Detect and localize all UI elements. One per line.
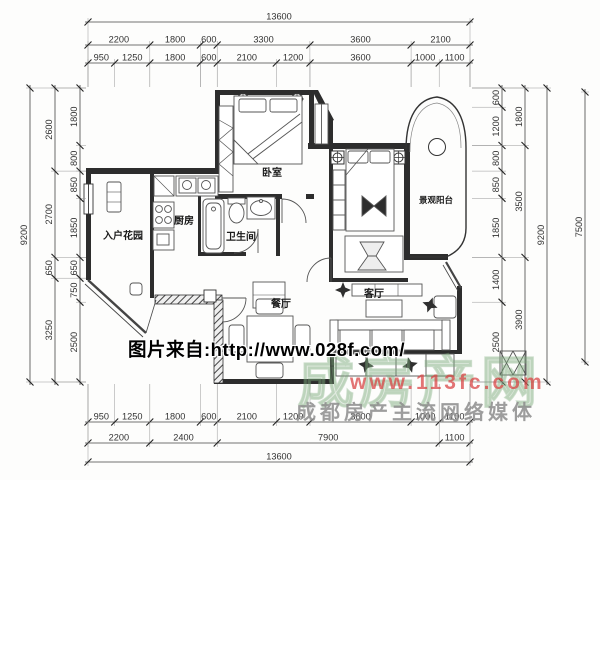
- dimension-value: 1000: [415, 53, 435, 63]
- dimension-value: 1250: [122, 412, 142, 422]
- garden-bench: [107, 182, 121, 212]
- dimension-value: 1800: [165, 412, 185, 422]
- floorplan-page: 卧室 厨房 卫生间 入户花园 餐厅 客厅 景观阳台 13600220018006…: [0, 0, 600, 666]
- dimension-value: 950: [94, 53, 109, 63]
- bath-sink: [247, 197, 275, 219]
- dimension-value: 650: [44, 260, 54, 275]
- dimension-value: 3600: [350, 53, 370, 63]
- dimension-value: 2100: [237, 412, 257, 422]
- dimension-value: 1200: [283, 53, 303, 63]
- dimension-value: 2400: [173, 433, 193, 443]
- room-label-living: 客厅: [363, 287, 384, 300]
- dimension-value: 1800: [514, 107, 524, 127]
- floor-plan: 卧室 厨房 卫生间 入户花园 餐厅 客厅 景观阳台 13600220018006…: [0, 0, 600, 480]
- garden-planter: [130, 283, 142, 295]
- second-wardrobe: [333, 170, 345, 230]
- dimension-value: 1400: [491, 270, 501, 290]
- dimension-value: 1800: [69, 107, 79, 127]
- garden-arc-wall: [85, 280, 156, 337]
- dimension-value: 2200: [109, 433, 129, 443]
- dimension-value: 750: [69, 283, 79, 298]
- dimension-value: 2100: [237, 53, 257, 63]
- garden-window: [84, 184, 93, 214]
- dimension-value: 800: [491, 151, 501, 166]
- dimension-value: 1850: [69, 218, 79, 238]
- dimension-value: 7500: [574, 217, 584, 237]
- kitchen-cabinet: [153, 230, 174, 250]
- dimension-value: 850: [491, 177, 501, 192]
- sofa: [330, 320, 450, 350]
- vanity-table: [345, 236, 403, 272]
- dimension-value: 13600: [266, 12, 292, 22]
- dimension-value: 1200: [283, 412, 303, 422]
- room-label-kitchen: 厨房: [174, 214, 194, 227]
- dining-table: [229, 299, 310, 378]
- dimension-value: 600: [491, 90, 501, 105]
- dimension-value: 2100: [430, 35, 450, 45]
- room-label-balcony: 景观阳台: [419, 195, 454, 205]
- dimension-value: 1800: [165, 35, 185, 45]
- room-label-bath: 卫生间: [226, 230, 256, 243]
- dimension-value: 1100: [445, 433, 465, 443]
- dimension-value: 600: [201, 53, 216, 63]
- room-label-bedroom: 卧室: [262, 166, 282, 179]
- fridge: [154, 176, 174, 196]
- dimension-value: 2200: [109, 35, 129, 45]
- dimension-value: 1850: [491, 218, 501, 238]
- dimension-value: 3250: [44, 320, 54, 340]
- dimension-value: 650: [69, 260, 79, 275]
- master-wardrobe: [219, 106, 233, 192]
- bay-window: [336, 354, 454, 376]
- dimension-value: 1200: [491, 116, 501, 136]
- dimension-value: 600: [201, 412, 216, 422]
- second-bed: [346, 149, 394, 231]
- room-label-dining: 餐厅: [270, 297, 291, 310]
- dimension-value: 1250: [122, 53, 142, 63]
- dimension-value: 9200: [19, 225, 29, 245]
- dimension-value: 600: [201, 35, 216, 45]
- dimension-value: 1100: [445, 412, 465, 422]
- dimension-value: 1800: [165, 53, 185, 63]
- room-label-entry-garden: 入户花园: [103, 229, 143, 242]
- dimension-value: 800: [69, 151, 79, 166]
- balcony-outline: [406, 97, 466, 257]
- coffee-table: [366, 300, 402, 317]
- balcony-column: [429, 139, 446, 156]
- dimension-value: 9200: [536, 225, 546, 245]
- unit-info-panel: A2 两室两厅一厨一卫 建筑面积：94m² ■客厅与餐厅组合式布局, 实用大空间…: [0, 480, 600, 666]
- dimension-value: 850: [69, 177, 79, 192]
- armchair: [434, 296, 456, 318]
- dimension-value: 13600: [266, 452, 292, 462]
- dimension-value: 3600: [350, 412, 370, 422]
- hatched-walls: [155, 295, 223, 383]
- dimension-value: 2500: [491, 332, 501, 352]
- bathtub: [203, 199, 224, 253]
- dimension-value: 2600: [44, 119, 54, 139]
- dimension-value: 3900: [514, 309, 524, 329]
- dimension-value: 3300: [253, 35, 273, 45]
- side-window-symbol: [500, 351, 526, 375]
- dimension-value: 950: [94, 412, 109, 422]
- dimension-value: 2500: [69, 332, 79, 352]
- master-bed: [234, 96, 302, 164]
- dimension-value: 1000: [415, 412, 435, 422]
- dimension-value: 1100: [445, 53, 465, 63]
- dimension-value: 3600: [350, 35, 370, 45]
- stove: [153, 202, 174, 228]
- dimension-value: 2700: [44, 204, 54, 224]
- bedroom-closet: [315, 104, 328, 144]
- dimension-value: 7900: [318, 433, 338, 443]
- dimension-value: 3500: [514, 191, 524, 211]
- kitchen-sink: [176, 176, 218, 196]
- tv-bench: [352, 284, 422, 296]
- toilet: [228, 198, 245, 223]
